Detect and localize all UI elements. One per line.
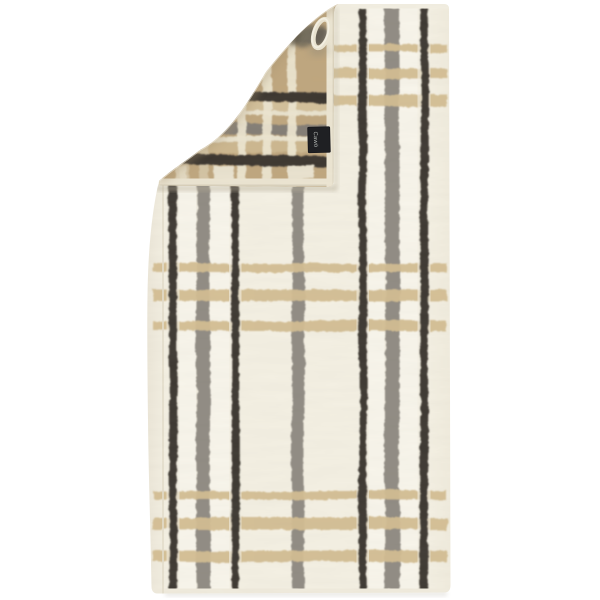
svg-text:Cawö: Cawö — [312, 132, 318, 148]
